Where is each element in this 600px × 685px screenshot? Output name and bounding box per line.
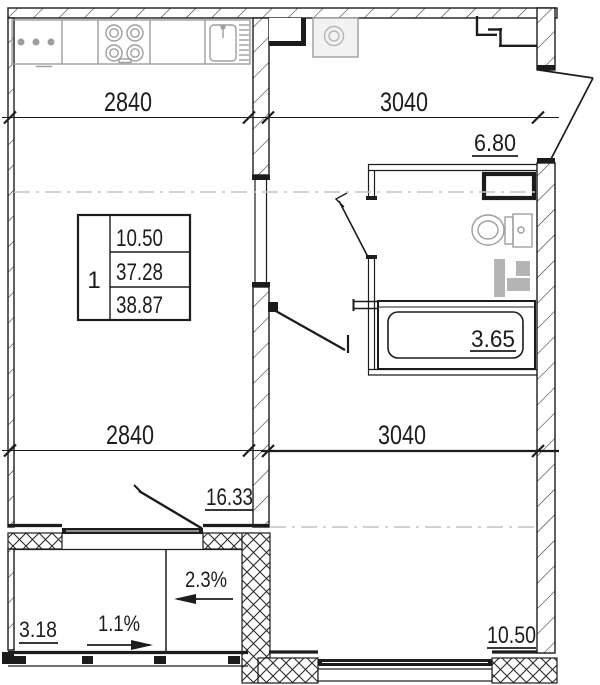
right-wall (537, 163, 555, 653)
middle-wall-lower (253, 287, 269, 527)
area-label-kitchen-living: 16.33 (206, 484, 253, 511)
balcony-pier (8, 533, 62, 549)
washing-machine-icon (313, 18, 358, 57)
wall-cap (537, 158, 555, 163)
area-label-bathroom: 3.65 (471, 326, 515, 353)
loggia-pier (258, 658, 318, 683)
wall-cap (252, 282, 270, 287)
area-label-bedroom: 10.50 (487, 622, 536, 649)
door-jamb (366, 196, 377, 200)
info-table: 1 10.50 37.28 38.87 (78, 215, 190, 320)
dim-label-top-right: 3040 (380, 87, 428, 117)
area-label-hallway: 6.80 (474, 130, 516, 157)
slope-label-loggia: 2.3% (185, 567, 227, 592)
middle-wall-upper (253, 18, 269, 175)
floor-plan-drawing: 1 10.50 37.28 38.87 2840 3040 2840 3040 … (0, 0, 600, 685)
hallway-niche (269, 18, 306, 46)
area-label-balcony: 3.18 (19, 617, 57, 642)
table-row-total-area: 38.87 (116, 292, 163, 319)
table-row-area: 37.28 (116, 259, 163, 286)
cabinet-dots-icon (18, 39, 55, 46)
vent-shaft (484, 174, 534, 198)
right-wall-top (537, 8, 555, 70)
slope-label-balcony: 1.1% (98, 611, 140, 636)
dim-label-top-left: 2840 (104, 87, 152, 117)
wall-cap (252, 175, 270, 180)
top-wall (8, 8, 557, 18)
balcony-left-wall (8, 549, 14, 650)
table-row-living-area: 10.50 (116, 225, 163, 252)
table-rooms-count: 1 (87, 267, 100, 294)
dim-label-mid-left: 2840 (106, 420, 154, 450)
loggia-glazing (318, 669, 492, 681)
dim-label-mid-right: 3040 (378, 420, 426, 450)
loggia-pier (492, 658, 557, 683)
floor-plan: 1 10.50 37.28 38.87 2840 3040 2840 3040 … (0, 0, 600, 685)
